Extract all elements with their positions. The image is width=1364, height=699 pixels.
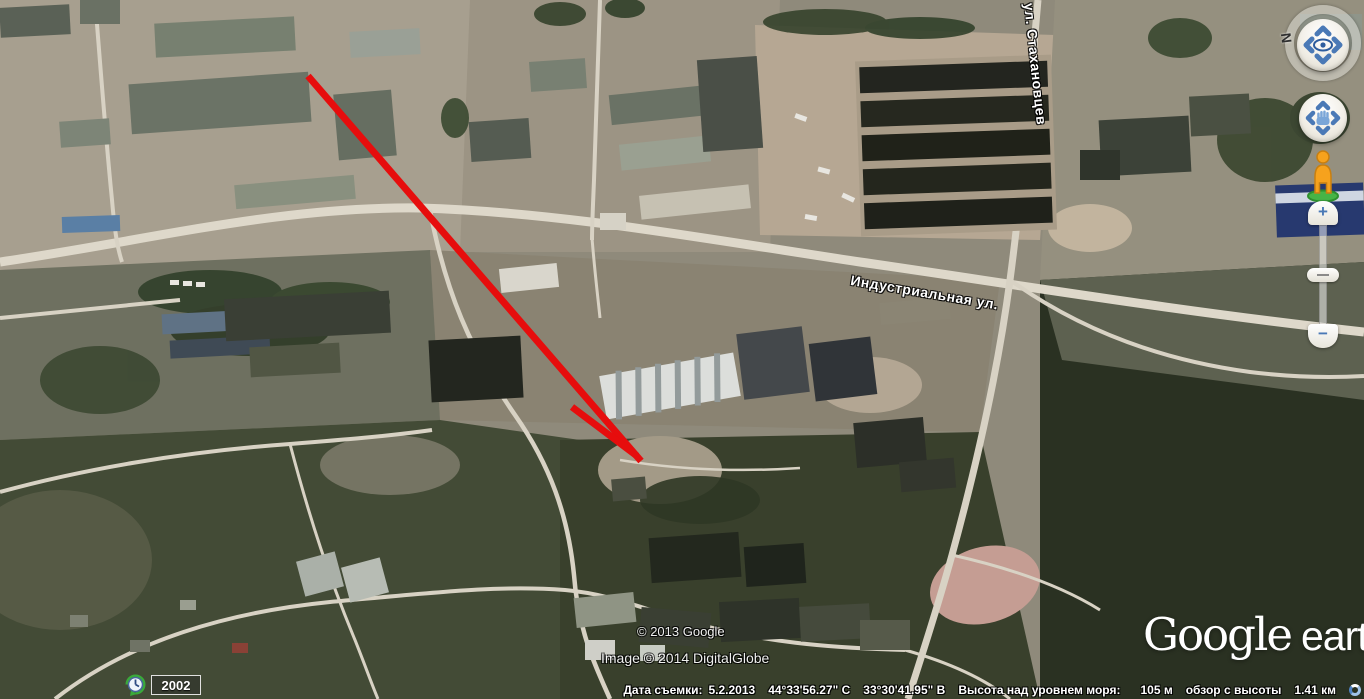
street-view-pegman[interactable]	[1302, 147, 1344, 203]
move-joystick[interactable]	[1299, 94, 1347, 142]
status-bar: Дата съемки: 5.2.2013 44°33'56.27" С 33°…	[623, 683, 1361, 697]
google-earth-logo: Google earth	[1143, 608, 1364, 661]
logo-earth: earth	[1301, 613, 1364, 660]
history-clock-icon[interactable]	[124, 673, 147, 696]
capture-date: Дата съемки: 5.2.2013	[623, 683, 755, 697]
zoom-in-button[interactable]: +	[1308, 201, 1338, 225]
capture-date-value: 5.2.2013	[708, 683, 755, 697]
google-earth-viewport[interactable]: Индустриальная ул. ул. Стахановцев © 201…	[0, 0, 1364, 699]
spacer	[1126, 683, 1134, 697]
streaming-spinner-icon	[1349, 684, 1361, 696]
eye-icon	[1297, 19, 1349, 71]
imagery-year-badge[interactable]: 2002	[151, 675, 201, 695]
copyright-google: © 2013 Google	[637, 624, 725, 639]
eye-altitude-value: 1.41 км	[1294, 683, 1336, 697]
satellite-imagery[interactable]	[0, 0, 1364, 699]
elevation-label: Высота над уровнем моря:	[958, 683, 1120, 697]
latitude-value: 44°33'56.27" С	[768, 683, 850, 697]
north-indicator[interactable]: N	[1278, 32, 1295, 44]
capture-date-label: Дата съемки:	[623, 683, 702, 697]
zoom-slider-handle[interactable]	[1307, 268, 1339, 282]
pan-hand-icon	[1299, 94, 1347, 142]
logo-google: Google	[1143, 608, 1291, 661]
eye-altitude-label: обзор с высоты	[1186, 683, 1282, 697]
copyright-digitalglobe: Image © 2014 DigitalGlobe	[601, 650, 769, 666]
longitude-value: 33°30'41.95" В	[863, 683, 945, 697]
elevation: Высота над уровнем моря: 105 м	[958, 683, 1172, 697]
elevation-value: 105 м	[1140, 683, 1172, 697]
look-joystick[interactable]	[1297, 19, 1349, 71]
